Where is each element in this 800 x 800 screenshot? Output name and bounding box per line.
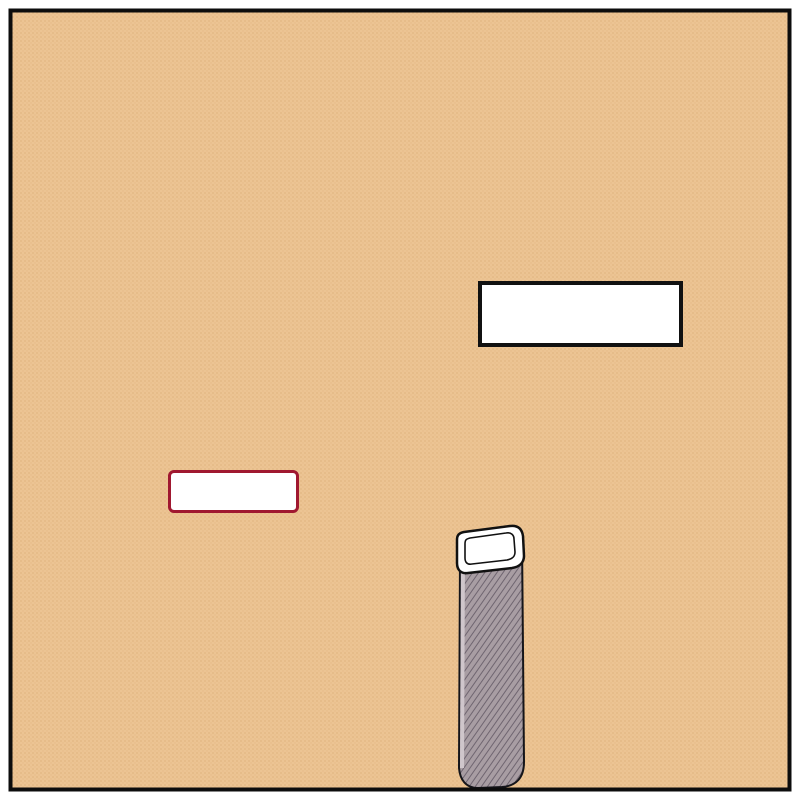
- cabinet-dentaire-callout: [478, 281, 683, 347]
- tour-montparnasse-illustration: [457, 526, 524, 788]
- paris-15-badge: [168, 470, 299, 513]
- paris-map: [0, 0, 800, 800]
- map-land-background: [12, 12, 788, 788]
- tower-highlight: [462, 558, 463, 768]
- tower-roof: [457, 526, 524, 573]
- paris-map-page: [0, 0, 800, 800]
